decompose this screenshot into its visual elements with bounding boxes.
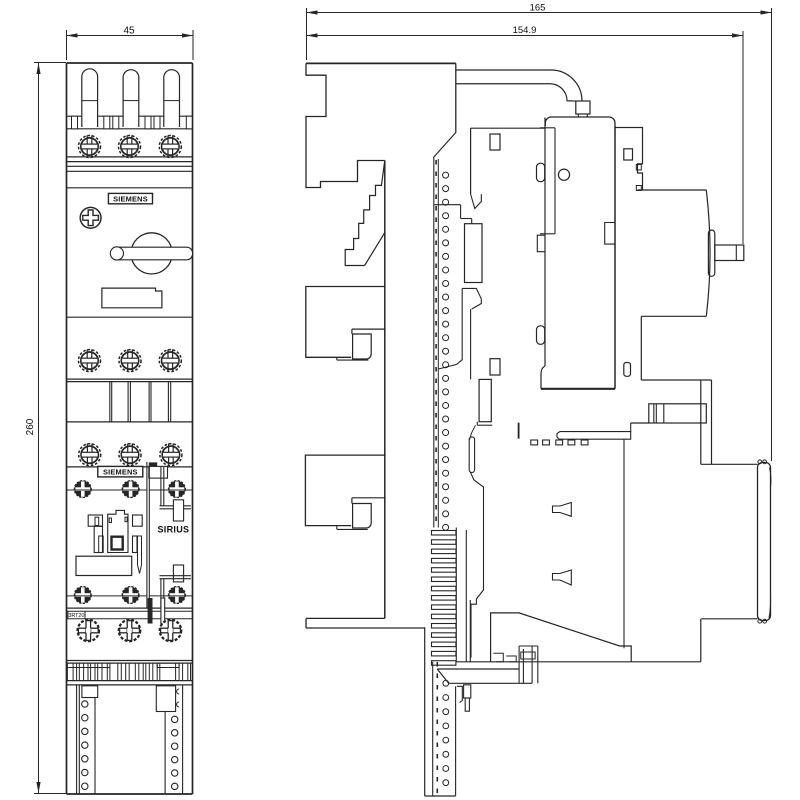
- svg-text:45: 45: [123, 26, 135, 37]
- svg-text:154.9: 154.9: [513, 25, 537, 36]
- svg-text:SIEMENS: SIEMENS: [113, 194, 148, 203]
- svg-text:SIEMENS: SIEMENS: [103, 468, 138, 477]
- svg-text:260: 260: [25, 418, 36, 435]
- svg-text:3RT20: 3RT20: [68, 613, 84, 619]
- svg-text:165: 165: [530, 3, 546, 14]
- svg-text:SIRIUS: SIRIUS: [157, 524, 189, 534]
